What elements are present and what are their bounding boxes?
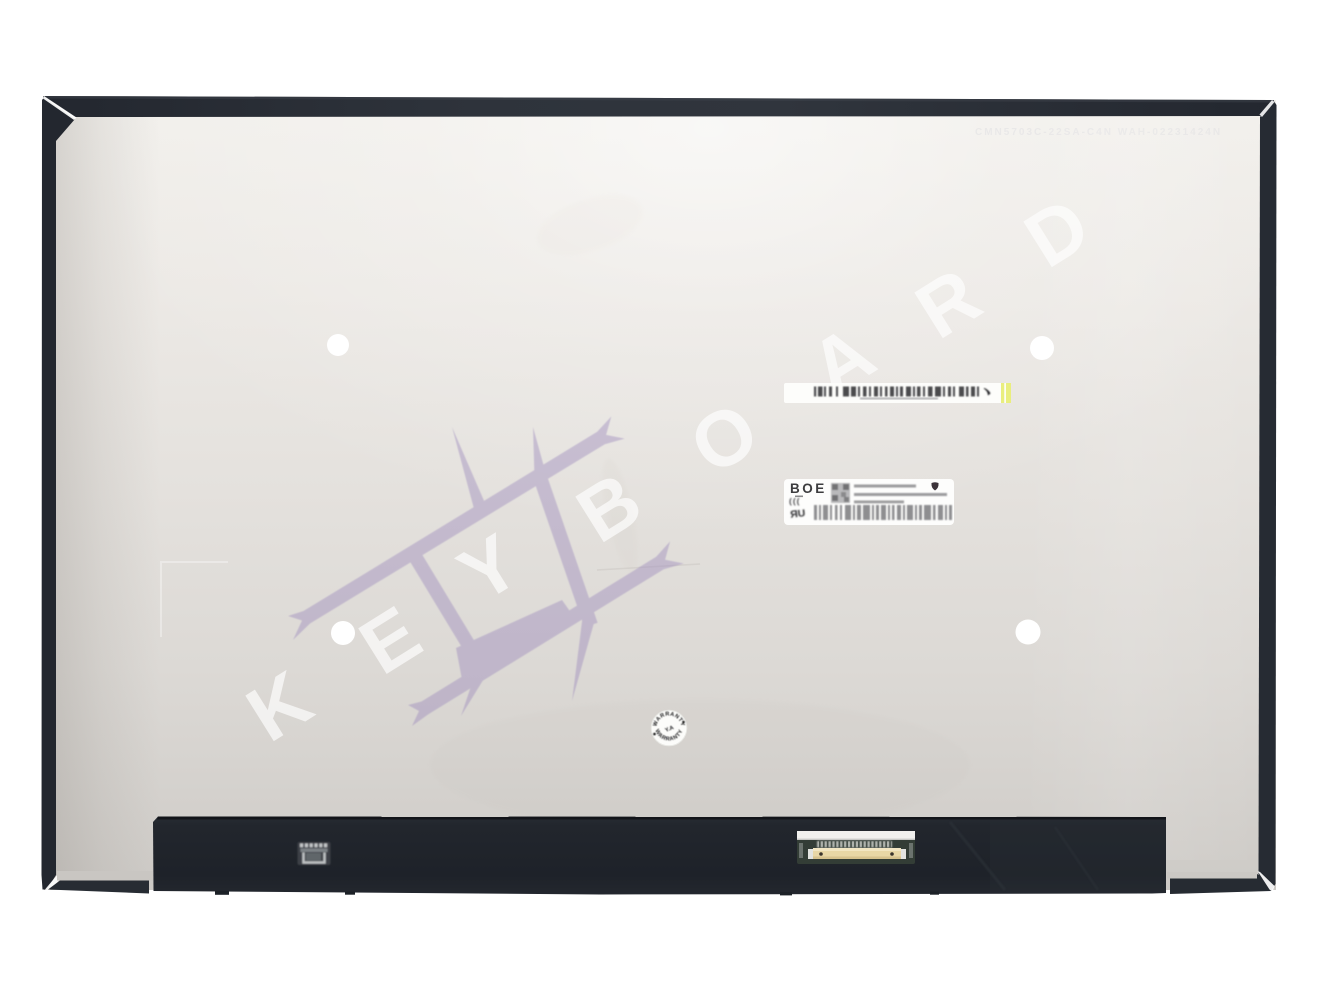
svg-text:ЯU: ЯU [790, 507, 806, 521]
svg-text:BOE: BOE [790, 481, 827, 496]
svg-text:(((: ((( [789, 496, 801, 506]
